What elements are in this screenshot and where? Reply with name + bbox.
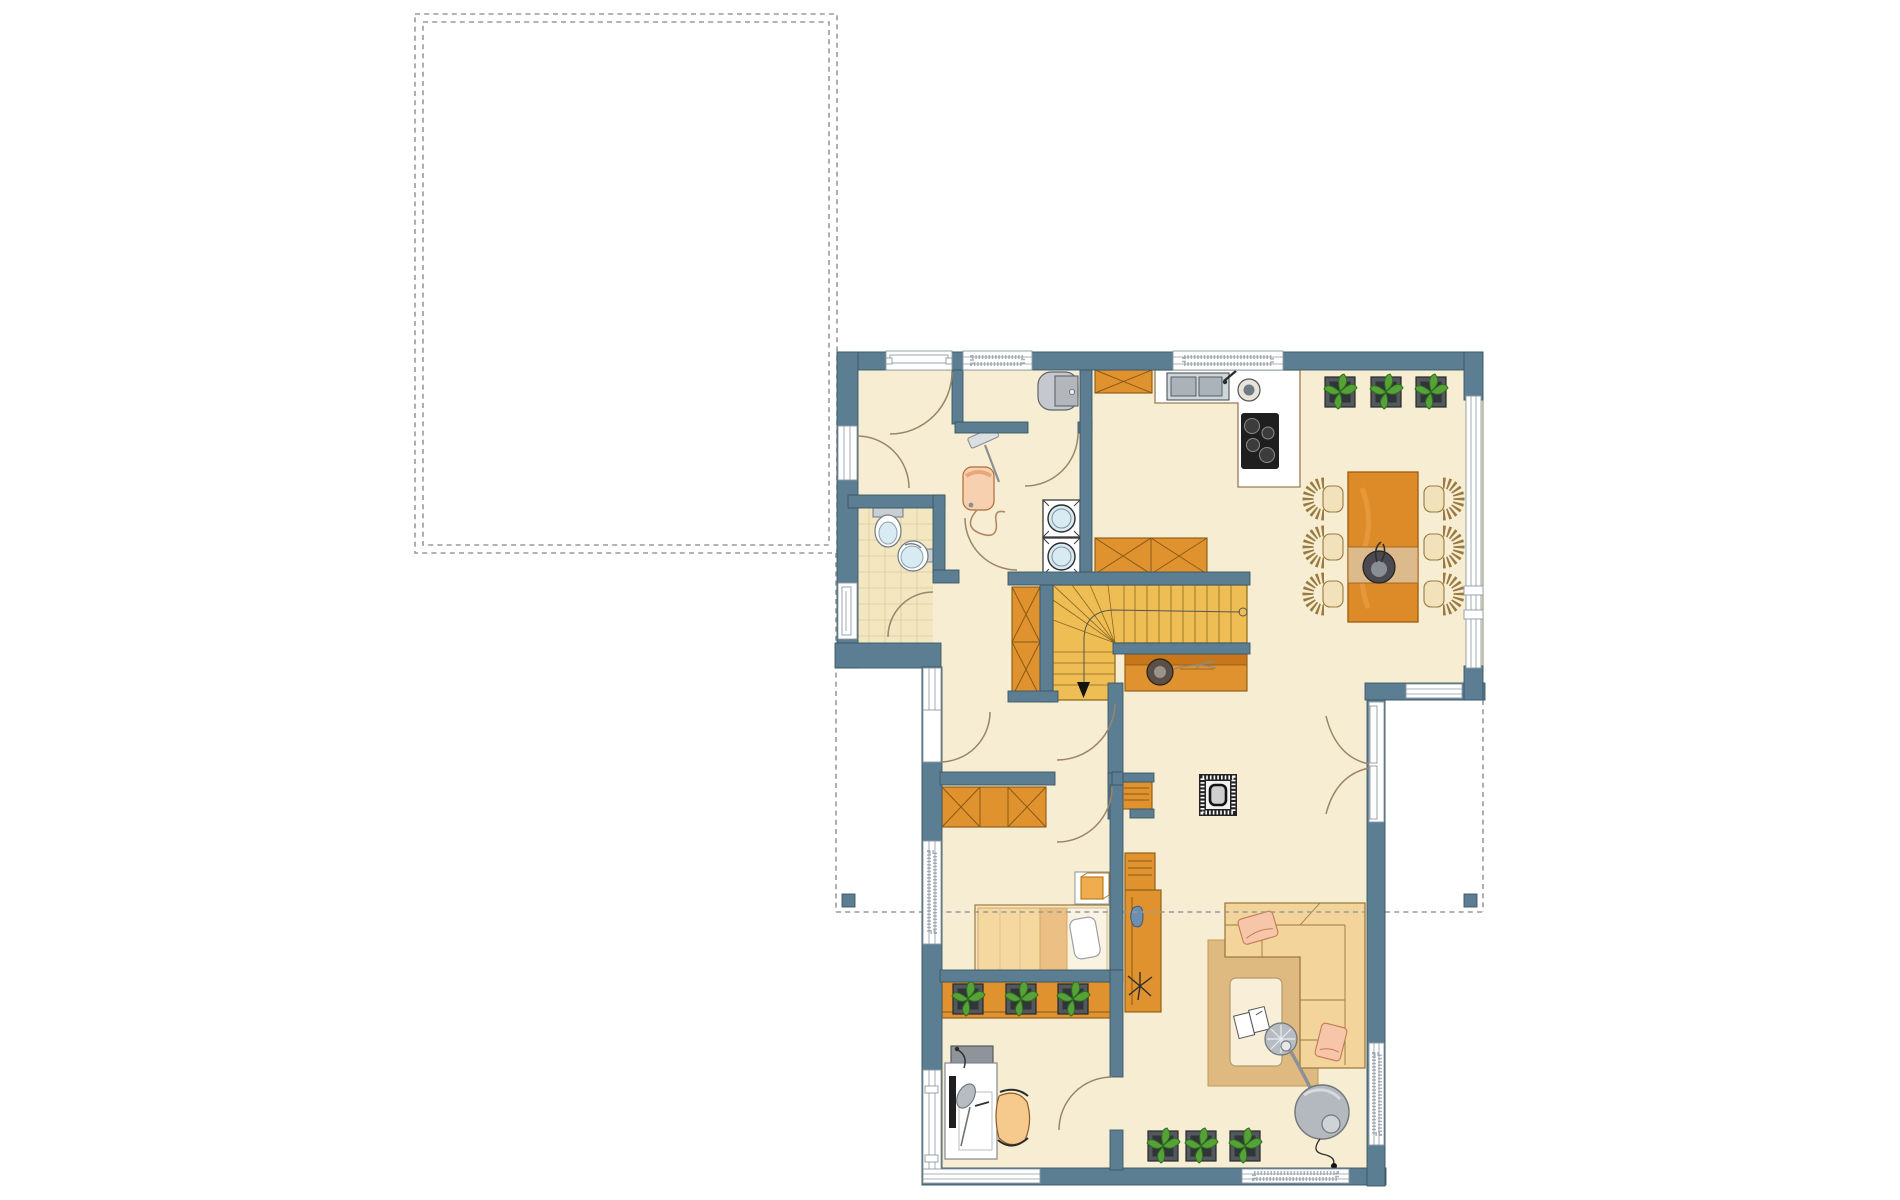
dining-table bbox=[1348, 472, 1418, 622]
desk bbox=[945, 1047, 997, 1159]
french-door-glass bbox=[1369, 702, 1384, 822]
book-shelf bbox=[1121, 782, 1152, 809]
cooktop bbox=[1241, 413, 1279, 469]
hall-wardrobe bbox=[1012, 587, 1040, 697]
boiler bbox=[1038, 372, 1078, 410]
plant-pot bbox=[1415, 374, 1448, 409]
plant-pot bbox=[1229, 1128, 1262, 1163]
window-top-a bbox=[963, 351, 1032, 370]
plant-pot bbox=[1057, 981, 1090, 1016]
dryer bbox=[1043, 538, 1080, 575]
window-wc-lobby bbox=[838, 426, 857, 480]
wall-cabinet bbox=[1095, 370, 1152, 393]
toilet bbox=[873, 508, 903, 547]
side-entrance-door bbox=[838, 583, 857, 639]
plant-sideboard bbox=[942, 981, 1112, 1018]
plant-pot bbox=[952, 981, 985, 1016]
plant-pot bbox=[1324, 374, 1357, 409]
double-bed bbox=[975, 905, 1110, 973]
counter-bowl bbox=[1238, 379, 1260, 401]
kitchen-island bbox=[1095, 538, 1207, 574]
plant-pot bbox=[1185, 1128, 1218, 1163]
window-living-east bbox=[1369, 1043, 1384, 1145]
glass-facade-dining bbox=[1464, 396, 1483, 668]
window-bedroom bbox=[923, 841, 941, 944]
corridor-side-opening bbox=[923, 710, 941, 762]
nightstand bbox=[1075, 872, 1109, 904]
wood-stove bbox=[1199, 774, 1237, 816]
entrance-door bbox=[886, 351, 952, 370]
terrace-post bbox=[1464, 894, 1477, 907]
plant-pot bbox=[1147, 1128, 1180, 1163]
floor-plan-page bbox=[0, 0, 1900, 1200]
terrace-post bbox=[842, 894, 855, 907]
bedroom-wardrobe bbox=[942, 787, 1046, 827]
window-dining-south bbox=[1406, 684, 1462, 698]
window-kitchen bbox=[1173, 351, 1283, 370]
plant-pot bbox=[1370, 374, 1403, 409]
window-corridor bbox=[923, 668, 941, 714]
floor-plan-drawing bbox=[0, 0, 1900, 1200]
kitchen-sink bbox=[1167, 371, 1236, 400]
washing-machine bbox=[1043, 500, 1080, 537]
garage-footprint-outline bbox=[415, 14, 837, 553]
window-living-south bbox=[1242, 1169, 1349, 1183]
sideboard-with-bowl bbox=[1125, 653, 1247, 691]
plant-pot bbox=[1005, 981, 1038, 1016]
